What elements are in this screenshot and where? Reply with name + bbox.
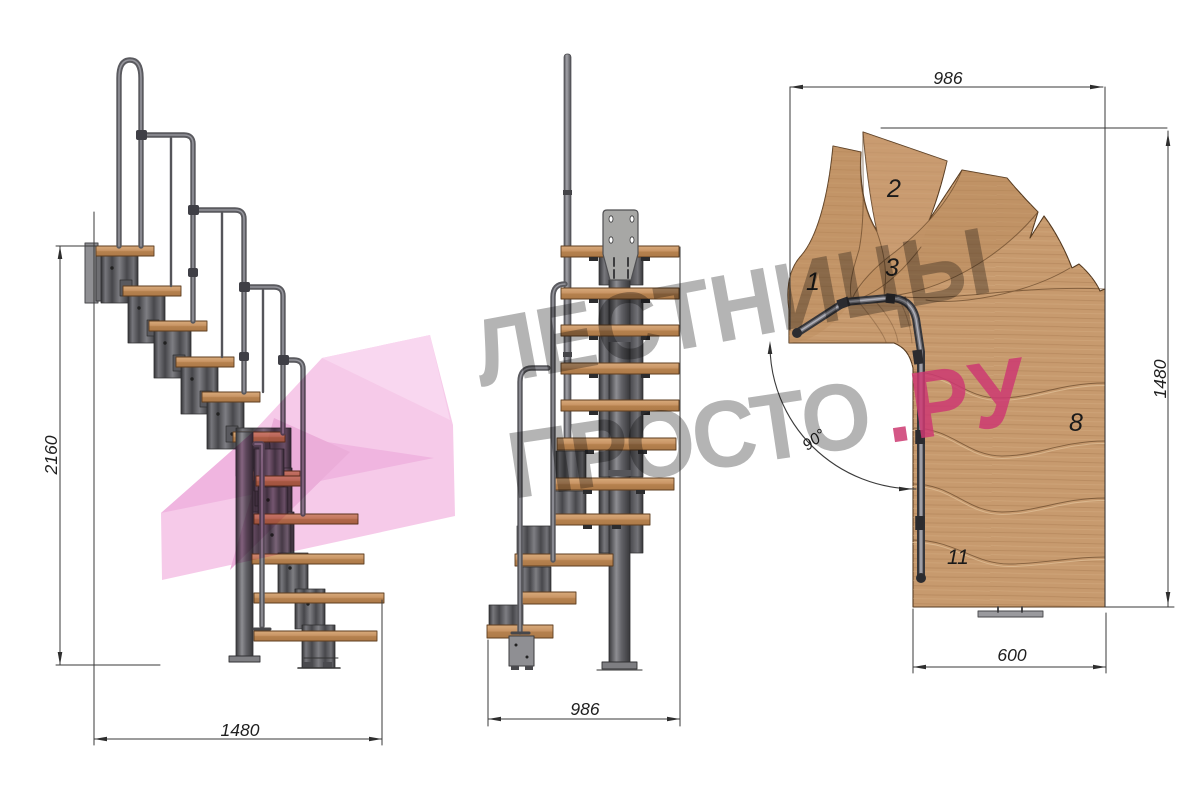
svg-text:8: 8 [1069, 409, 1083, 437]
svg-text:1480: 1480 [1150, 359, 1170, 398]
svg-text:2: 2 [886, 175, 901, 203]
svg-text:2160: 2160 [41, 435, 61, 475]
svg-text:1480: 1480 [221, 720, 260, 740]
svg-text:.РУ: .РУ [876, 336, 1035, 463]
svg-text:986: 986 [570, 699, 599, 719]
svg-text:986: 986 [933, 68, 962, 88]
svg-text:11: 11 [947, 546, 969, 569]
svg-text:600: 600 [997, 645, 1026, 665]
